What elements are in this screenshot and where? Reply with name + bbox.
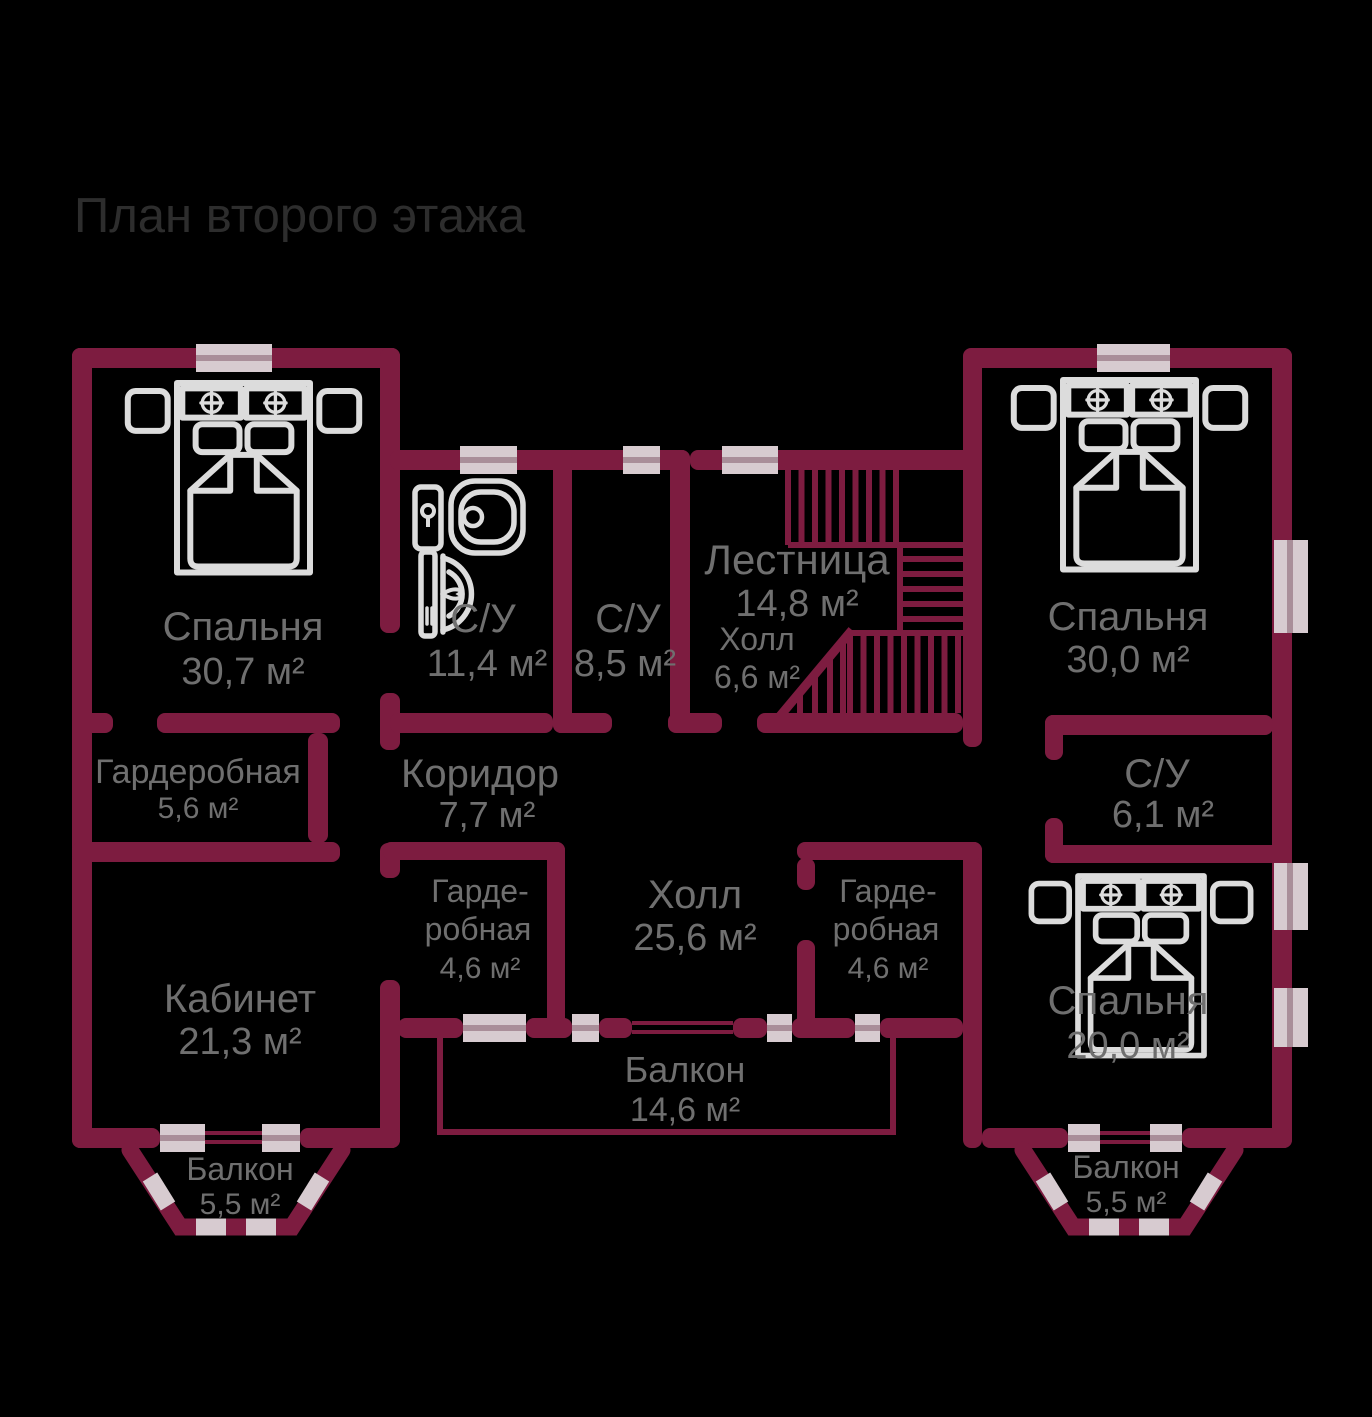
room-area: 5,5 м² xyxy=(200,1188,281,1221)
wall xyxy=(380,348,400,633)
room-area: 5,6 м² xyxy=(158,792,239,825)
room-area: 5,5 м² xyxy=(1086,1186,1167,1219)
room-name: Гарде- xyxy=(431,873,529,909)
room-name: Спальня xyxy=(163,605,324,649)
room-name: робная xyxy=(833,911,940,947)
wall xyxy=(300,1128,400,1148)
wall xyxy=(1045,715,1063,760)
room-name: Коридор xyxy=(401,752,559,796)
room-name: С/У xyxy=(450,597,516,641)
window xyxy=(460,446,517,474)
wall xyxy=(668,713,722,733)
wall xyxy=(880,1018,963,1038)
window xyxy=(623,446,660,474)
window xyxy=(855,1014,880,1042)
wall xyxy=(72,842,340,862)
room-name: Гарде- xyxy=(839,873,937,909)
window xyxy=(572,1014,599,1042)
wall xyxy=(398,1018,463,1038)
room-area: 4,6 м² xyxy=(848,952,929,985)
room-area: 30,0 м² xyxy=(1066,639,1189,681)
wall xyxy=(553,713,612,733)
room-name: робная xyxy=(425,911,532,947)
room-area: 14,6 м² xyxy=(630,1091,740,1129)
room-name: Кабинет xyxy=(164,977,316,1021)
room-name: Лестница xyxy=(704,536,890,583)
wall xyxy=(383,842,565,860)
room-name: Спальня xyxy=(1048,979,1209,1023)
window xyxy=(722,446,778,474)
wall xyxy=(599,1018,632,1038)
room-name: Холл xyxy=(648,873,742,917)
room-area: 14,8 м² xyxy=(735,583,858,625)
wall xyxy=(670,450,690,733)
window xyxy=(1097,344,1170,372)
wall xyxy=(157,713,340,733)
wall xyxy=(792,1018,855,1038)
room-area: 21,3 м² xyxy=(178,1021,301,1063)
room-name: Балкон xyxy=(625,1049,746,1090)
wall xyxy=(547,842,565,1038)
room-name: Холл xyxy=(719,621,794,657)
room-name: С/У xyxy=(595,597,661,641)
room-area: 30,7 м² xyxy=(181,651,304,693)
window xyxy=(767,1014,792,1042)
wall xyxy=(380,980,400,1148)
floor-plan: План второго этажа xyxy=(0,0,1372,1417)
room-name: Балкон xyxy=(1072,1149,1179,1185)
wall xyxy=(963,842,982,1148)
window xyxy=(1274,988,1308,1047)
room-name: Балкон xyxy=(186,1151,293,1187)
window xyxy=(463,1014,526,1042)
wall xyxy=(72,1128,160,1148)
wall xyxy=(797,842,982,860)
room-area: 20,0 м² xyxy=(1066,1025,1189,1067)
window xyxy=(196,344,272,372)
room-area: 25,6 м² xyxy=(633,917,756,959)
room-name: Гардеробная xyxy=(95,753,301,791)
window xyxy=(1274,863,1308,930)
window xyxy=(1274,540,1308,633)
wall xyxy=(757,713,963,733)
room-area: 6,6 м² xyxy=(714,659,800,695)
window xyxy=(1068,1124,1100,1152)
wall xyxy=(308,733,328,843)
wall xyxy=(797,858,815,890)
wall xyxy=(1045,715,1273,735)
room-area: 7,7 м² xyxy=(439,794,536,835)
room-area: 8,5 м² xyxy=(574,643,676,685)
window xyxy=(160,1124,205,1152)
wall xyxy=(963,348,982,747)
wall xyxy=(1045,845,1292,863)
room-name: С/У xyxy=(1124,752,1190,796)
room-name: Спальня xyxy=(1048,595,1209,639)
page-title: План второго этажа xyxy=(74,189,526,243)
room-area: 4,6 м² xyxy=(440,952,521,985)
wall xyxy=(72,713,113,733)
window xyxy=(1150,1124,1182,1152)
wall xyxy=(390,713,553,733)
wall xyxy=(72,348,92,1148)
room-area: 6,1 м² xyxy=(1112,794,1214,836)
room-area: 11,4 м² xyxy=(427,643,547,685)
wall xyxy=(526,1018,572,1038)
wall xyxy=(553,450,572,733)
window xyxy=(262,1124,300,1152)
wall xyxy=(733,1018,767,1038)
